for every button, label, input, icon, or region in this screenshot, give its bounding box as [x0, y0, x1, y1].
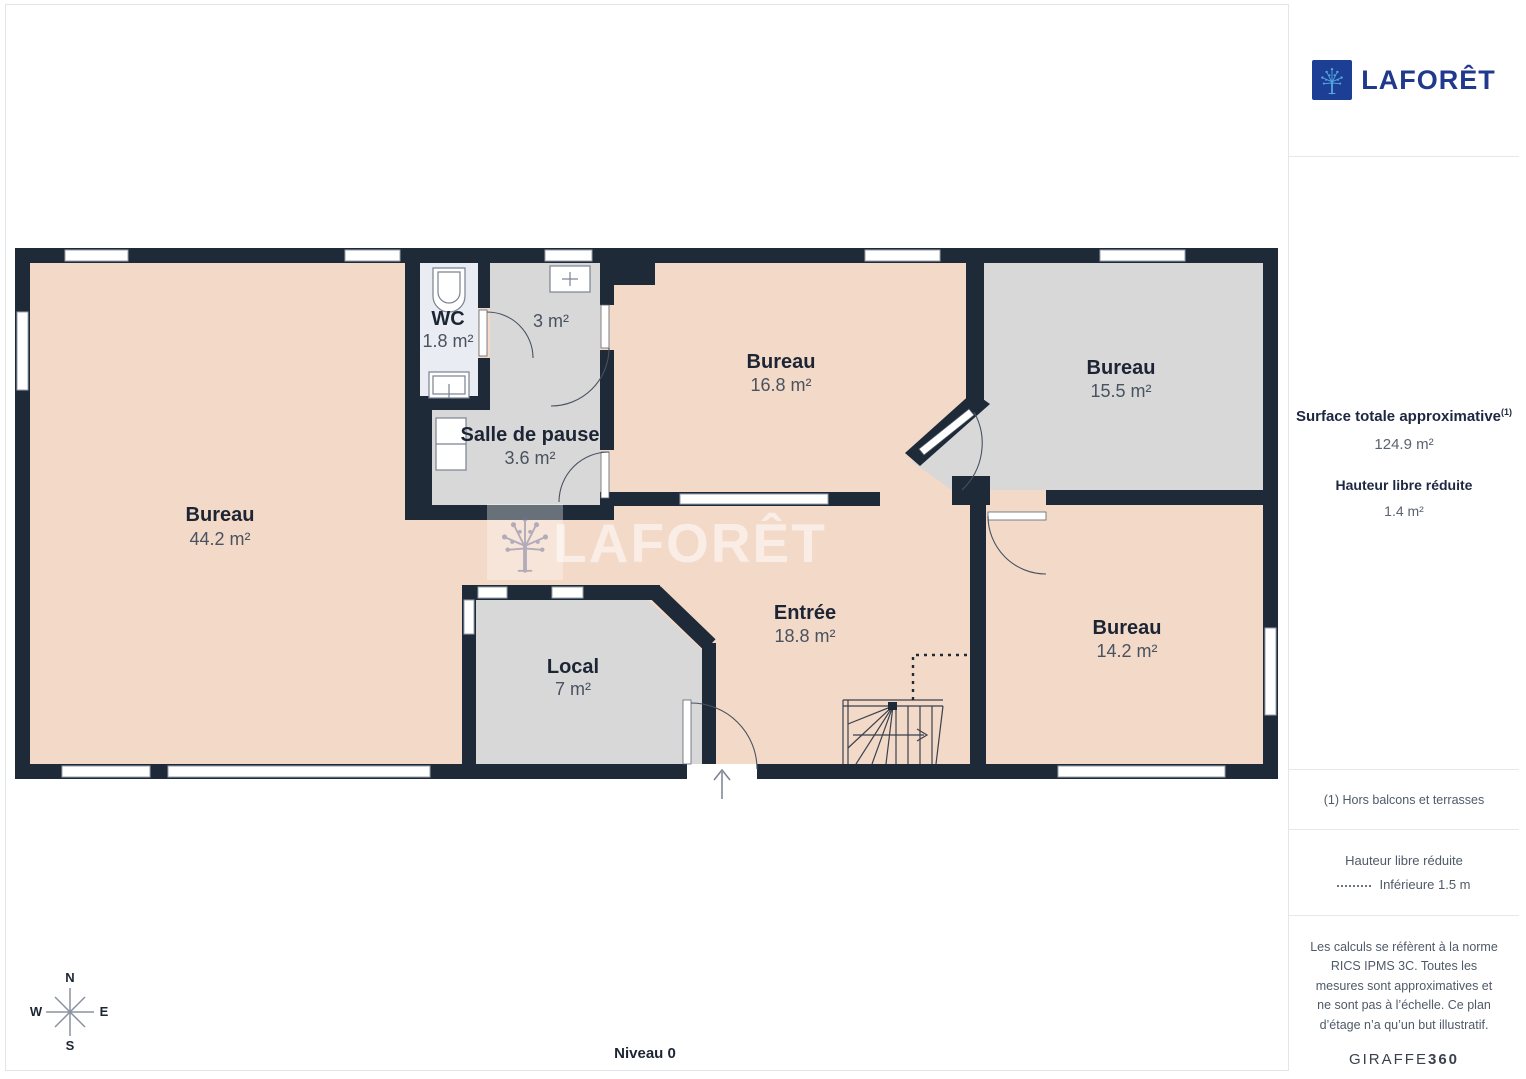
compass-s: S: [66, 1038, 75, 1053]
level-label: Niveau 0: [614, 1045, 676, 1062]
footnote-marker: (1): [1501, 407, 1512, 417]
room-name: Bureau: [1087, 357, 1156, 379]
legal-section: Les calculs se réfèrent à la norme RICS …: [1289, 916, 1519, 1071]
reduced-height-value: 1.4 m²: [1289, 503, 1519, 519]
room-area: 7 m²: [555, 679, 591, 699]
room-name: Entrée: [774, 602, 836, 624]
sidebar: LAFORÊT Surface totale approximative(1) …: [1288, 4, 1519, 1071]
disclaimer-text: Les calculs se réfèrent à la norme RICS …: [1308, 938, 1500, 1035]
compass-e: E: [100, 1004, 109, 1019]
legend-item: Inférieure 1.5 m: [1337, 877, 1470, 892]
room-name: Bureau: [1093, 617, 1162, 639]
reduced-height-label: Hauteur libre réduite: [1289, 477, 1519, 493]
room-area: 15.5 m²: [1090, 381, 1151, 401]
footnote: (1) Hors balcons et terrasses: [1289, 770, 1519, 830]
laforet-tree-icon: [1312, 60, 1352, 100]
giraffe360-credit: GIRAFFE360: [1289, 1051, 1519, 1068]
room-name: Bureau: [186, 504, 255, 526]
compass-icon: N S W E: [30, 970, 109, 1053]
brand-logo: LAFORÊT: [1289, 4, 1519, 157]
surface-total-label: Surface totale approximative(1): [1289, 407, 1519, 425]
surface-total-value: 124.9 m²: [1289, 436, 1519, 453]
room-area: 14.2 m²: [1096, 641, 1157, 661]
room-name: Bureau: [747, 351, 816, 373]
dotted-line-icon: [1337, 885, 1371, 887]
room-area: 3.6 m²: [504, 448, 555, 468]
room-area: 44.2 m²: [189, 529, 250, 549]
room-area: 18.8 m²: [774, 626, 835, 646]
watermark-text: LAFORÊT: [553, 512, 827, 574]
compass-n: N: [65, 970, 74, 985]
room-area: 1.8 m²: [422, 331, 473, 351]
compass-w: W: [30, 1004, 43, 1019]
room-name: Salle de pause: [461, 424, 600, 446]
surface-summary: Surface totale approximative(1) 124.9 m²…: [1289, 157, 1519, 770]
room-area: 16.8 m²: [750, 375, 811, 395]
room-name: Local: [547, 656, 599, 678]
room-name: WC: [431, 308, 464, 330]
brand-wordmark: LAFORÊT: [1361, 65, 1496, 96]
watermark: LAFORÊT: [487, 504, 827, 580]
room-area: 3 m²: [533, 311, 569, 331]
legend: Hauteur libre réduite Inférieure 1.5 m: [1289, 830, 1519, 916]
floor-plan-svg: LAFORÊT Bureau 44.2 m² WC 1.8 m² 3 m² Sa…: [0, 0, 1288, 1079]
legend-title: Hauteur libre réduite: [1345, 853, 1463, 868]
